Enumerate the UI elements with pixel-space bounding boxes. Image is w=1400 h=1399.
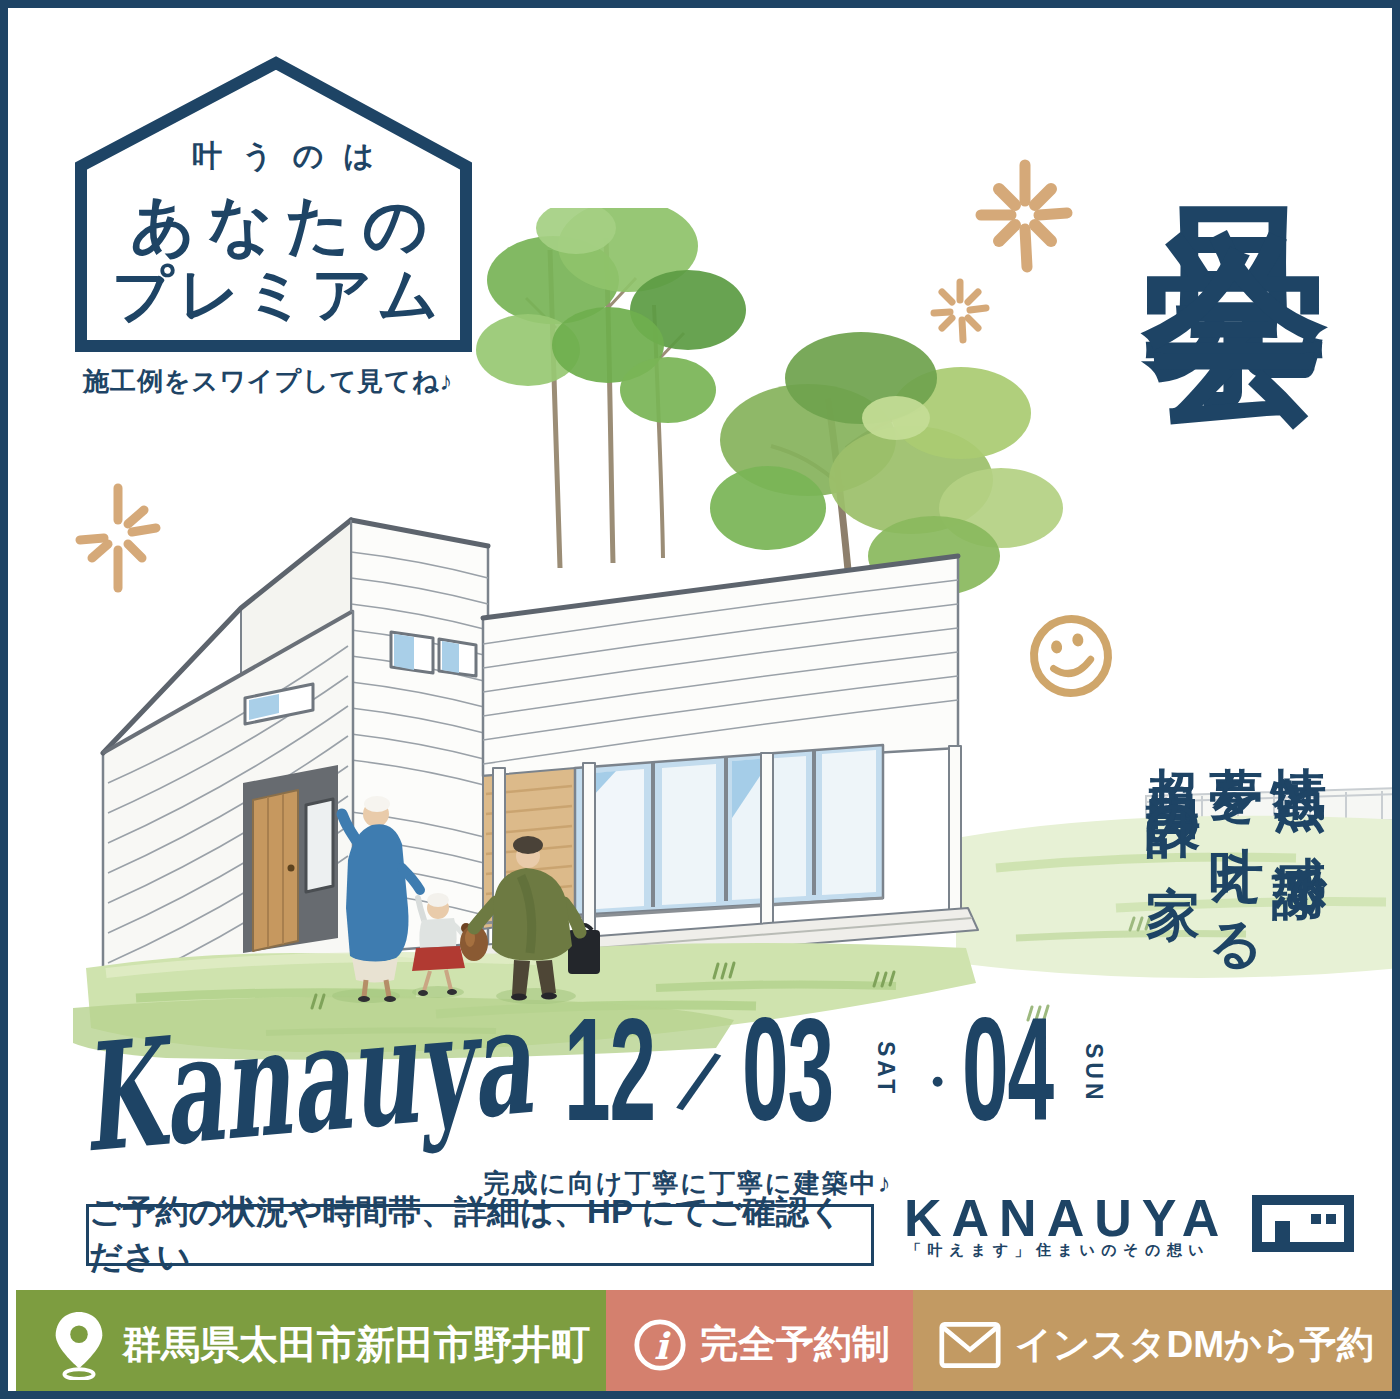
envelope-icon [939, 1321, 1001, 1369]
slogan-line-2: 夢を叶える [1209, 724, 1263, 954]
smiley-icon [1022, 604, 1122, 704]
brand-tagline: 「叶えます」住まいのその想い [906, 1241, 1210, 1260]
house-logomark-icon [1251, 1194, 1355, 1254]
tree [476, 208, 746, 568]
date-separator: ・ [911, 1048, 963, 1118]
premium-badge: 叶うのは あなたの プレミアム [74, 56, 472, 356]
footer-instagram-segment: インスタDMから予約 [913, 1290, 1400, 1399]
sparkle-icon [60, 476, 178, 598]
sparkle-icon [926, 276, 996, 346]
location-pin-icon [52, 1310, 106, 1380]
date-month: 12 [564, 996, 655, 1143]
svg-text:i: i [654, 1324, 671, 1367]
footer-reservation-segment: i 完全予約制 [606, 1290, 913, 1399]
slogan-line-3: 超自由設計の家 [1146, 724, 1200, 849]
reservation-banner-text: ご予約の状況や時間帯、詳細は、HP にてご確認ください [89, 1190, 871, 1280]
date-day1-weekday: SAT [874, 1041, 897, 1097]
flyer-poster: 叶うのは あなたの プレミアム 施工例をスワイプして見てね♪ [0, 0, 1400, 1399]
slogan-line-1: 情熱と感謝で [1272, 724, 1326, 901]
date-day2: 04 [962, 996, 1053, 1143]
badge-line-bottom: プレミアム [74, 255, 477, 336]
footer-reservation-label: 完全予約制 [700, 1319, 890, 1370]
info-icon: i [632, 1317, 688, 1373]
brand-signature: Kanauya [70, 993, 550, 1193]
signature-text: Kanauya [74, 993, 539, 1186]
footer-location-label: 群馬県太田市新田市野井町 [122, 1318, 590, 1372]
badge-line-top: 叶うのは [74, 136, 492, 177]
footer-instagram-label: インスタDMから予約 [1015, 1320, 1374, 1370]
footer-bar: 群馬県太田市新田市野井町 i 完全予約制 インスタDMから予約 [16, 1290, 1400, 1399]
date-day2-weekday: SUN [1082, 1043, 1105, 1104]
brand-logotype: KANAUYA [904, 1192, 1229, 1244]
reservation-banner: ご予約の状況や時間帯、詳細は、HP にてご確認ください [86, 1204, 874, 1266]
date-day1: 03 [742, 996, 833, 1143]
event-title: 見学会 [1144, 60, 1330, 114]
sparkle-icon [963, 143, 1087, 283]
swipe-note: 施工例をスワイプして見てね♪ [83, 364, 453, 399]
footer-location-segment: 群馬県太田市新田市野井町 [16, 1290, 606, 1399]
